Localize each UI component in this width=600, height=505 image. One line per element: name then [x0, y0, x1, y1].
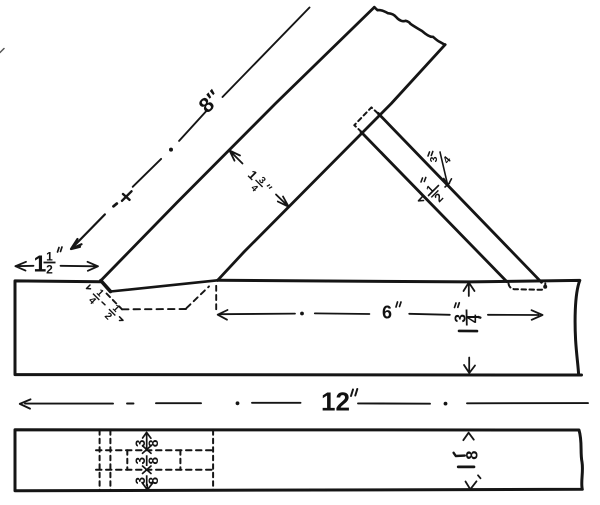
svg-text:12: 12	[321, 387, 350, 417]
svg-text:3: 3	[428, 156, 440, 162]
svg-text:1: 1	[34, 251, 47, 277]
svg-text:8: 8	[146, 439, 161, 447]
svg-text:4: 4	[86, 295, 98, 307]
svg-text:6: 6	[382, 303, 392, 323]
svg-text:8: 8	[146, 457, 161, 465]
svg-text:8: 8	[146, 476, 161, 484]
svg-text:4: 4	[466, 314, 483, 323]
svg-text:8″: 8″	[195, 86, 227, 118]
svg-text:1: 1	[46, 250, 53, 264]
svg-text:8: 8	[464, 451, 482, 460]
svg-text:4: 4	[248, 183, 260, 195]
svg-text:2: 2	[46, 263, 53, 277]
svg-text:2: 2	[431, 190, 446, 205]
svg-text:2: 2	[102, 311, 114, 323]
